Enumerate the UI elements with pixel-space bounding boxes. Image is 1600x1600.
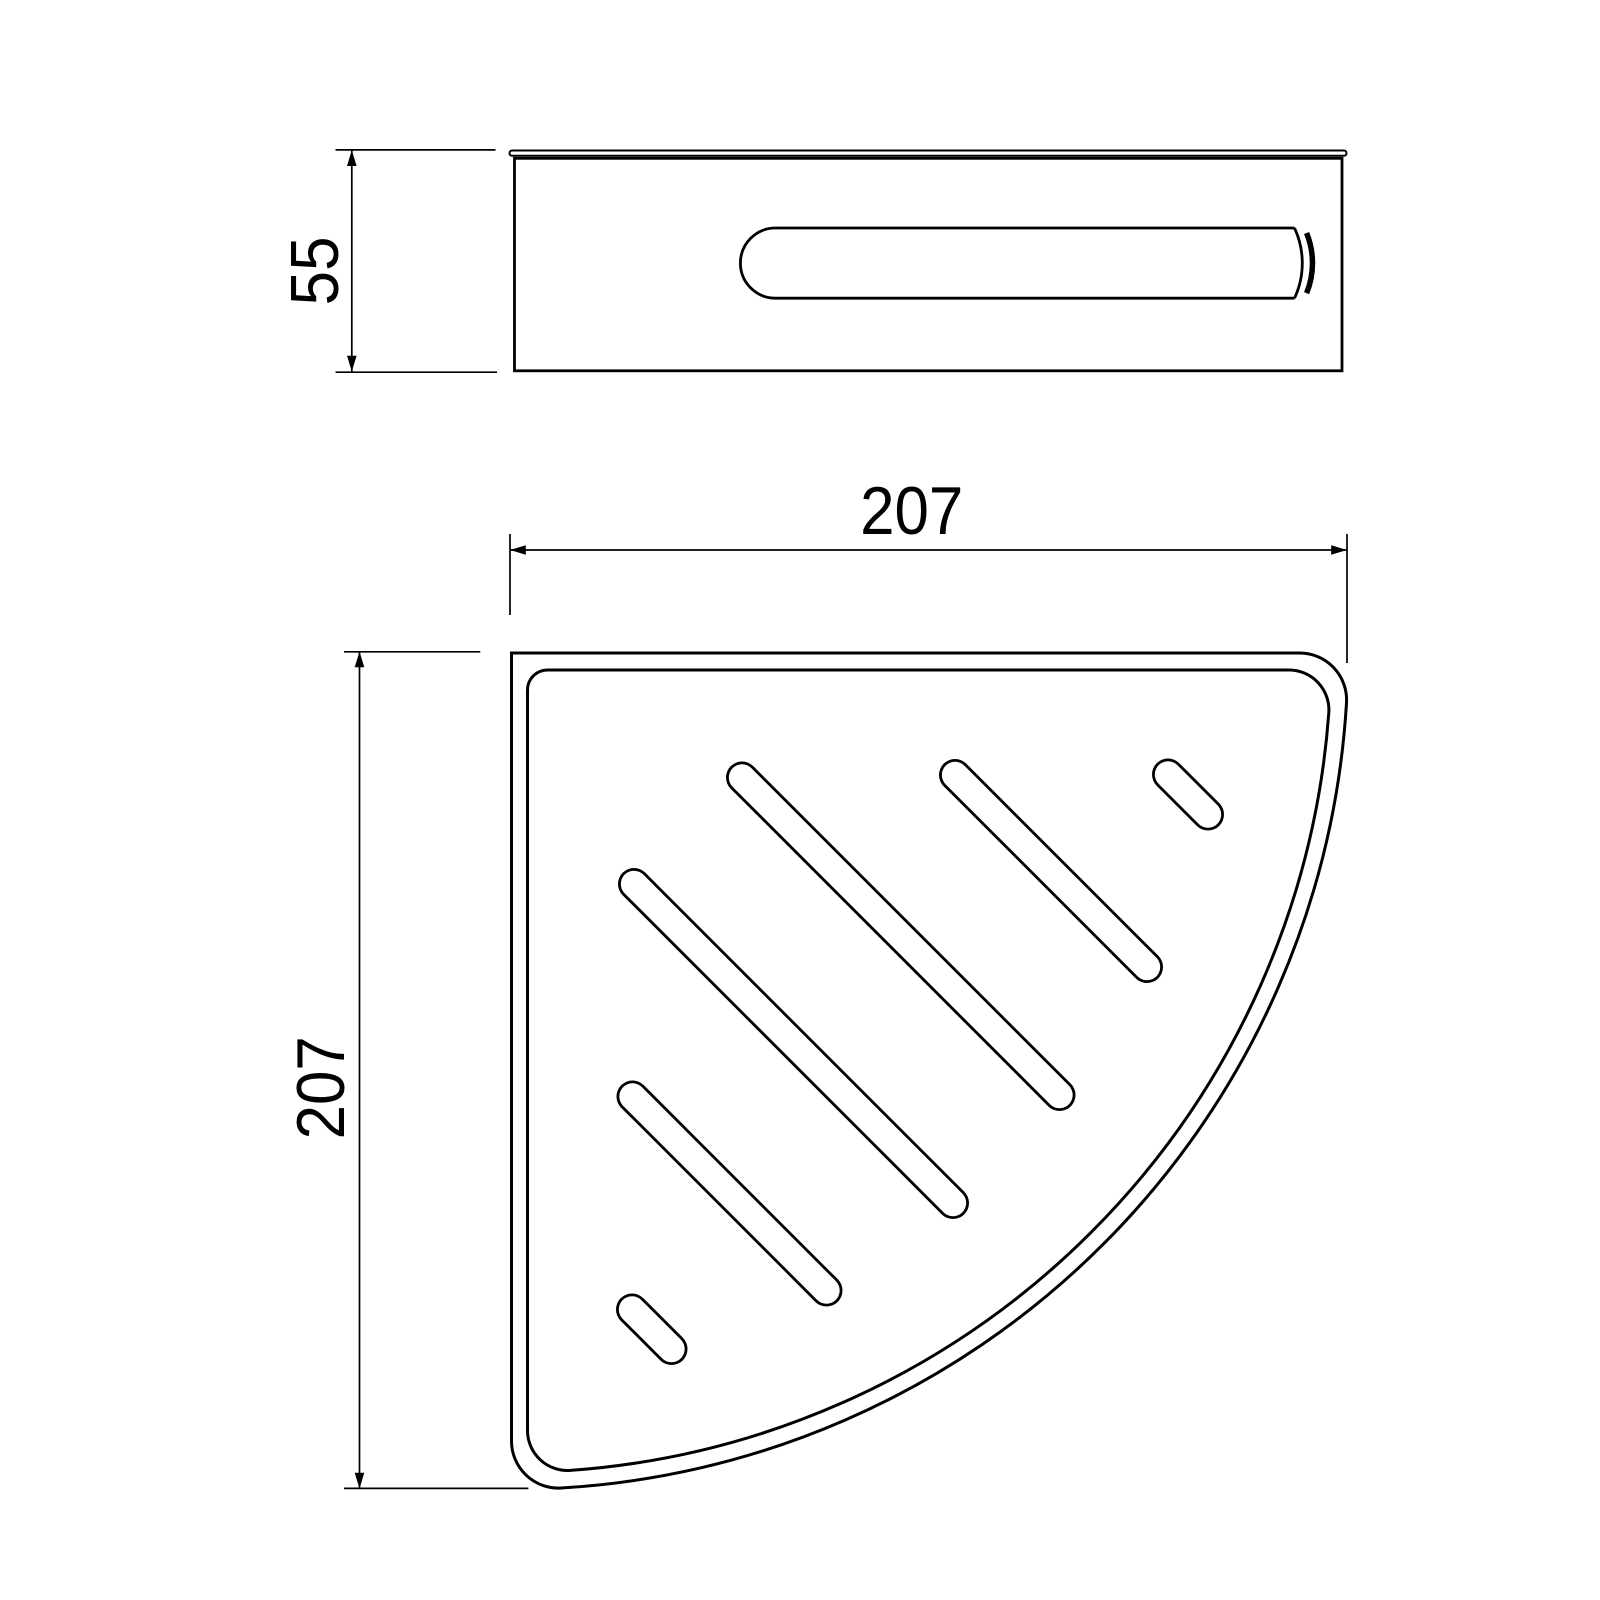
svg-text:55: 55 — [276, 236, 352, 305]
svg-text:207: 207 — [860, 472, 963, 548]
svg-text:207: 207 — [282, 1036, 358, 1139]
